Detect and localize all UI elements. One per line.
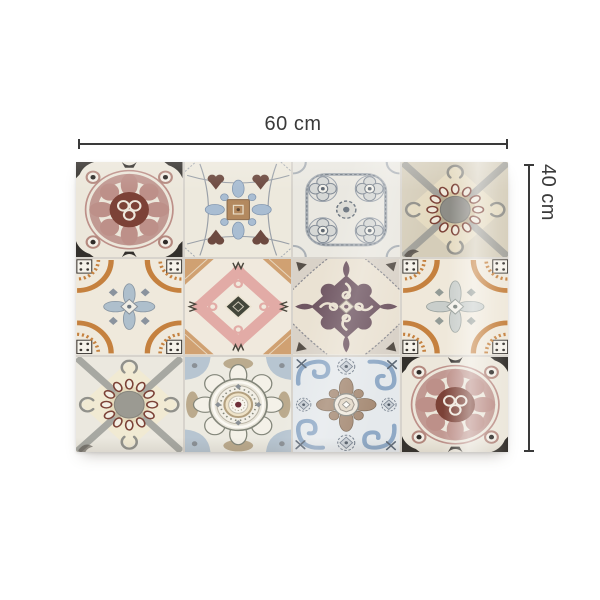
tile-pattern [293,357,400,452]
tile-cell [76,162,183,257]
tile-pattern [293,162,400,257]
tile-cell [293,162,400,257]
width-dimension-label: 60 cm [78,113,508,136]
tile-cell [185,259,292,354]
tile-pattern [76,357,183,452]
tile-cell [293,259,400,354]
tile-panel [76,162,508,452]
tile-pattern [293,259,400,354]
tile-cell [76,259,183,354]
tile-pattern [185,162,292,257]
tile-cell [402,357,509,452]
height-dimension-line [528,164,530,452]
tile-pattern [76,162,183,257]
tile-cell [402,162,509,257]
width-dimension-line [78,143,508,145]
tile-cell [185,162,292,257]
tile-cell [293,357,400,452]
tile-pattern [185,259,292,354]
tile-pattern [185,357,292,452]
tile-cell [402,259,509,354]
tile-pattern [402,357,509,452]
tile-pattern [402,259,509,354]
tile-product-image: 60 cm 40 cm [0,0,600,600]
tile-pattern [402,162,509,257]
tile-cell [185,357,292,452]
tile-cell [76,357,183,452]
tile-pattern [76,259,183,354]
height-dimension-label: 40 cm [536,164,559,452]
